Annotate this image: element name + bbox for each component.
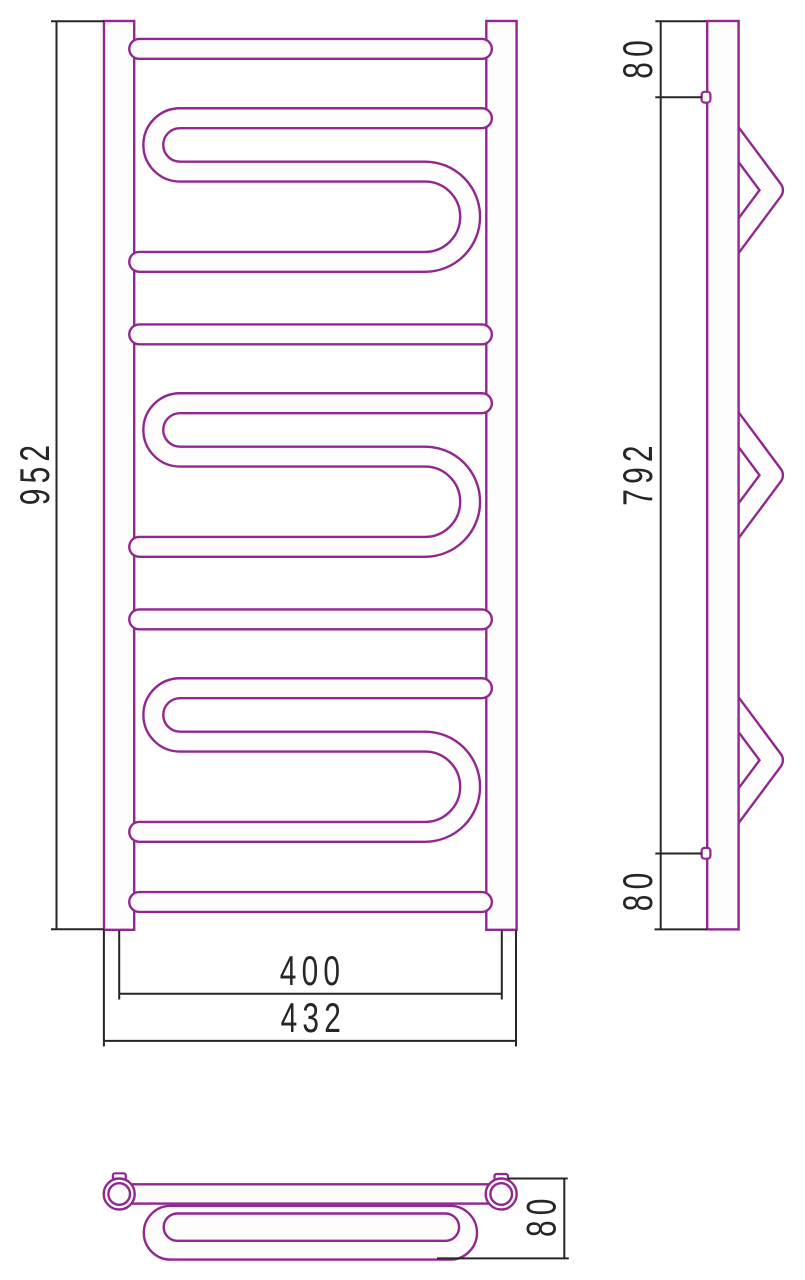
svg-text:952: 952 [11,440,58,505]
svg-text:432: 432 [281,994,346,1041]
svg-text:80: 80 [614,35,661,79]
svg-text:400: 400 [280,947,345,994]
svg-text:792: 792 [614,440,661,505]
svg-text:80: 80 [614,868,661,912]
svg-text:80: 80 [517,1193,564,1237]
